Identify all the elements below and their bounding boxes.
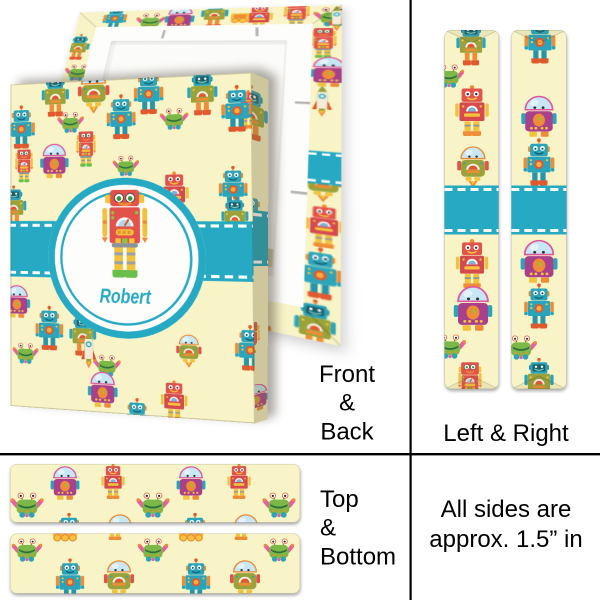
svg-text:approx. 1.5” in: approx. 1.5” in [429,526,582,553]
svg-text:Left & Right: Left & Right [443,420,569,447]
svg-text:Bottom: Bottom [320,544,396,571]
svg-text:Front: Front [319,361,375,388]
svg-text:Top: Top [320,486,359,513]
svg-text:&: & [339,390,355,417]
svg-text:Back: Back [320,419,374,446]
svg-text:&: & [320,515,336,542]
svg-text:All sides are: All sides are [441,496,572,523]
